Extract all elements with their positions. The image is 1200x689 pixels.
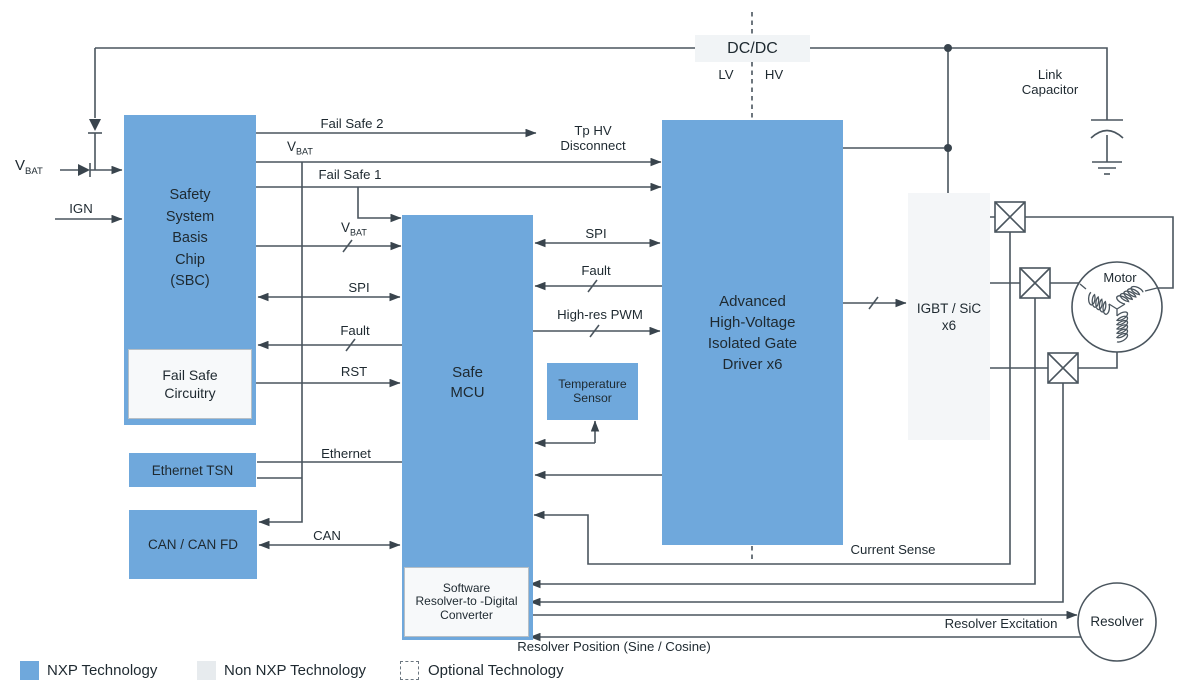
gate-driver-block: Advanced High-Voltage Isolated Gate Driv… (662, 120, 843, 545)
can-block: CAN / CAN FD (129, 510, 257, 579)
dcdc-block: DC/DC (695, 35, 810, 62)
legend-non-nxp-swatch (197, 661, 216, 680)
label-tp-hv-disconnect: Tp HV Disconnect (560, 124, 625, 153)
label-fail-safe-2: Fail Safe 2 (320, 117, 383, 132)
label-high-res-pwm: High-res PWM (557, 308, 643, 323)
igbt-sic-block: IGBT / SiC x6 (908, 193, 990, 440)
safe-mcu-title: Safe MCU (402, 363, 533, 403)
label-vbat-top: VBAT (287, 139, 313, 157)
label-vbat-input: VBAT (15, 157, 43, 177)
label-rst: RST (341, 365, 367, 380)
legend-non-nxp-label: Non NXP Technology (224, 662, 366, 679)
label-can: CAN (313, 529, 341, 544)
label-fail-safe-1: Fail Safe 1 (318, 168, 381, 183)
legend-nxp-swatch (20, 661, 39, 680)
label-hv: HV (765, 68, 783, 83)
legend-nxp-label: NXP Technology (47, 662, 157, 679)
label-ethernet: Ethernet (321, 447, 371, 462)
label-link-capacitor: Link Capacitor (1022, 68, 1078, 97)
label-spi-sbc: SPI (348, 281, 369, 296)
label-motor: Motor (1103, 270, 1136, 285)
label-resolver-position: Resolver Position (Sine / Cosine) (517, 640, 711, 655)
label-fault-sbc: Fault (340, 324, 369, 339)
legend-optional-label: Optional Technology (428, 662, 564, 679)
label-lv: LV (718, 68, 733, 83)
label-resolver-excitation: Resolver Excitation (945, 617, 1058, 632)
label-vbat-mcu: VBAT (341, 220, 367, 238)
label-resolver: Resolver (1090, 614, 1143, 629)
sbc-title: Safety System Basis Chip (SBC) (124, 185, 256, 293)
ethernet-tsn-block: Ethernet TSN (129, 453, 256, 487)
temperature-sensor-block: Temperature Sensor (547, 363, 638, 420)
label-current-sense: Current Sense (850, 543, 935, 558)
legend-optional-swatch (400, 661, 419, 680)
label-fault-driver: Fault (581, 264, 610, 279)
software-resolver-converter-block: Software Resolver-to -Digital Converter (404, 567, 529, 637)
label-spi-driver: SPI (585, 227, 606, 242)
fail-safe-circuitry-block: Fail Safe Circuitry (128, 349, 252, 419)
label-ign: IGN (69, 202, 92, 217)
traction-inverter-block-diagram: Safety System Basis Chip (SBC) Fail Safe… (0, 0, 1200, 689)
